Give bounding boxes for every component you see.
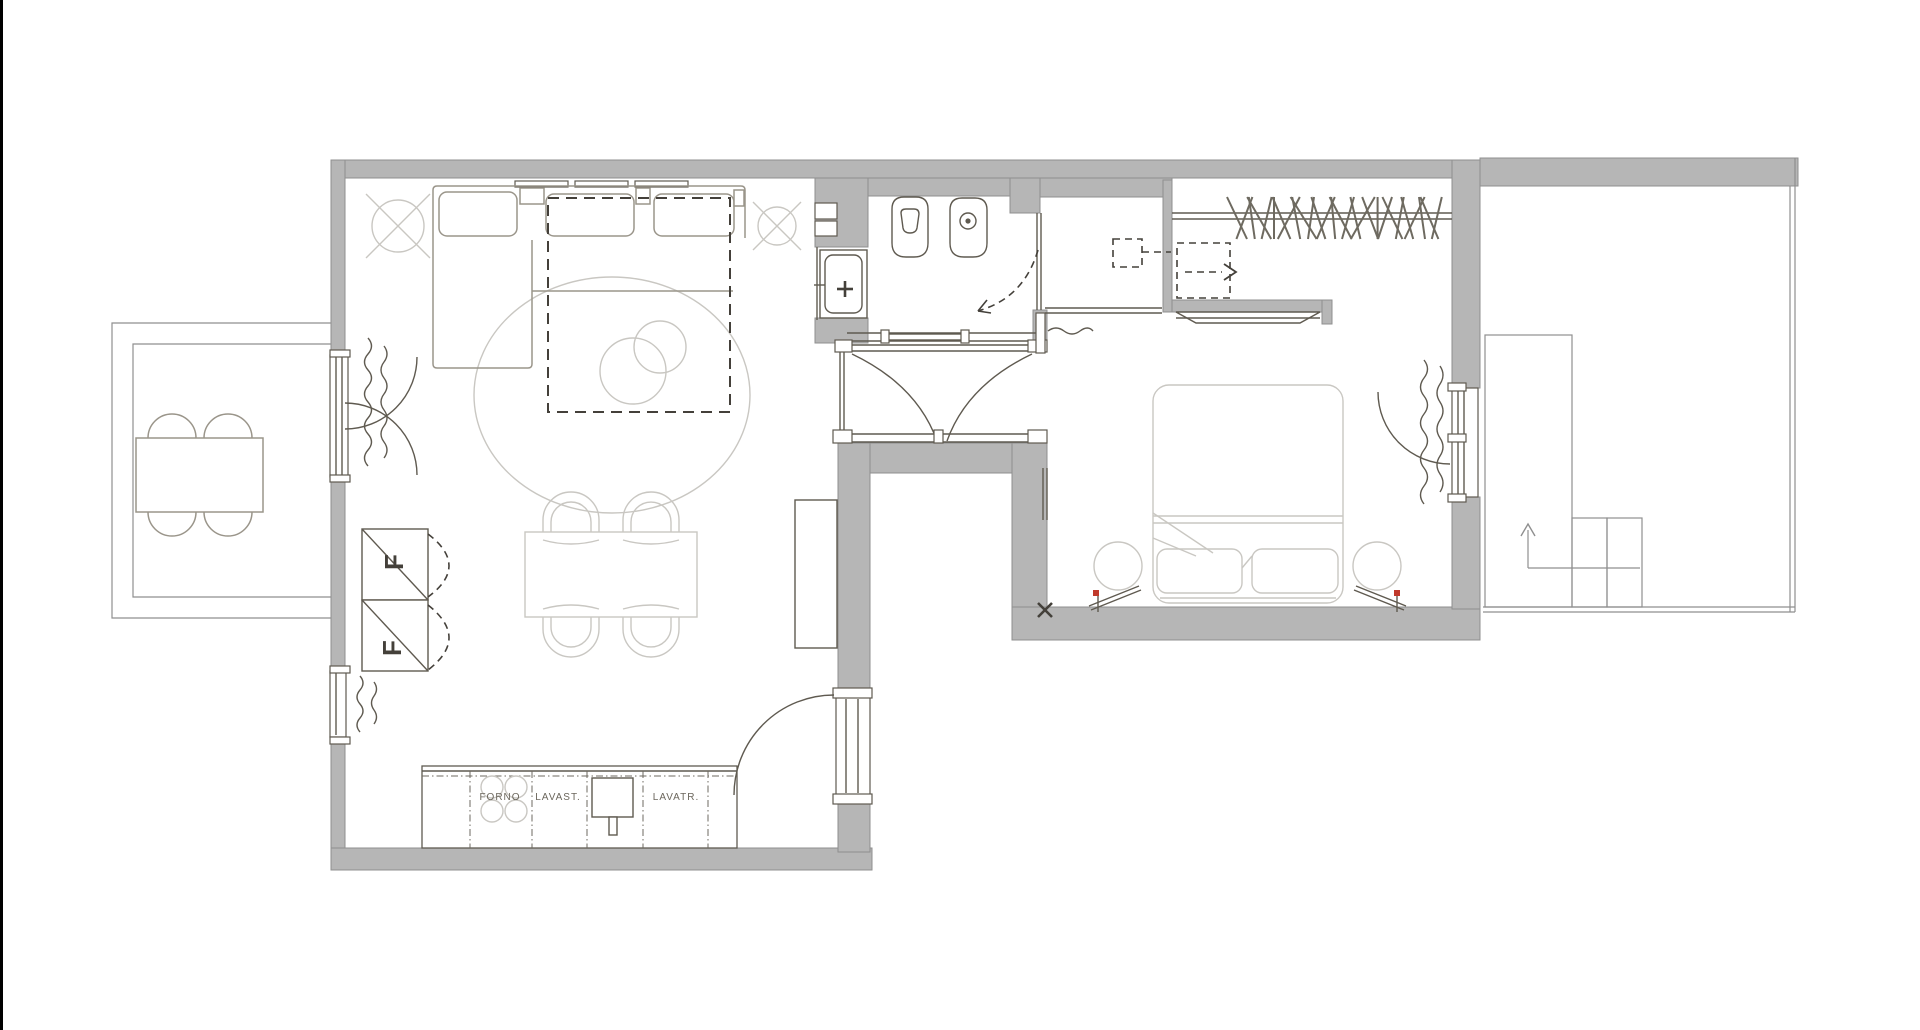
curtain-squiggle xyxy=(1437,366,1443,492)
door-jamb xyxy=(833,794,872,804)
curtain-squiggle xyxy=(365,338,372,466)
outdoor-chair xyxy=(148,414,196,438)
nightstand-round xyxy=(1353,542,1401,590)
double-bed xyxy=(1153,385,1343,603)
storage-column-label: F xyxy=(377,640,407,656)
storage-column-label: F xyxy=(379,554,409,570)
door-jamb xyxy=(835,340,852,352)
curtain-squiggle xyxy=(1421,360,1428,504)
door-jamb-column xyxy=(1036,313,1045,353)
curtain-squiggle xyxy=(357,676,363,732)
curtain-squiggle xyxy=(372,682,377,724)
step xyxy=(1572,518,1607,607)
ceiling-lamp-icon xyxy=(753,202,801,250)
pillow xyxy=(1252,549,1338,593)
wall-left-upper xyxy=(331,160,345,355)
label-oven: FORNO xyxy=(479,792,520,803)
sofa-cushion xyxy=(439,192,517,236)
balcony-door-window xyxy=(330,338,417,482)
sofa-armrest xyxy=(734,190,744,206)
dining-table xyxy=(525,532,697,617)
sofa-bed-open-outline xyxy=(548,198,730,412)
wall-left-middle xyxy=(331,477,345,671)
tall-cabinet xyxy=(795,500,837,648)
label-washing-machine: LAVATR. xyxy=(653,792,699,803)
balcony-right xyxy=(1483,158,1795,612)
living-room xyxy=(474,277,750,513)
shower xyxy=(814,250,867,318)
kitchen-counter: FORNO LAVAST. LAVATR. xyxy=(422,766,737,848)
walls xyxy=(331,158,1798,870)
round-rug xyxy=(474,277,750,513)
outdoor-chair xyxy=(204,512,252,536)
wall-bedroom-south xyxy=(1012,607,1480,640)
nightstand-round xyxy=(1094,542,1142,590)
entrance xyxy=(734,688,872,804)
laundry-niche xyxy=(1045,239,1171,313)
screen-edge-bar xyxy=(0,0,3,1030)
storage-column-f-lower: F xyxy=(362,600,449,671)
balcony-left xyxy=(112,323,331,618)
door-jamb xyxy=(833,688,872,698)
bidet xyxy=(950,198,987,257)
kitchen-window xyxy=(330,666,377,744)
opening-squiggle xyxy=(1048,328,1093,334)
appliance-dashed-outline xyxy=(1113,239,1142,267)
wall-bathroom-left-lower xyxy=(815,318,868,343)
side-table-large xyxy=(600,338,666,404)
double-door-swing xyxy=(852,354,937,441)
door-jamb xyxy=(1028,430,1047,443)
wall-below-entrance xyxy=(838,804,870,852)
living-room-furniture: F F xyxy=(362,181,837,671)
ceiling-lamp-icon xyxy=(366,194,430,258)
wall-bedroom-east-upper xyxy=(1452,160,1480,388)
door-swing-dashed xyxy=(428,605,449,670)
bathroom-door-swing-dashed xyxy=(978,250,1038,313)
storage-column-f-upper: F xyxy=(362,529,449,600)
dining-set xyxy=(525,492,697,657)
entrance-door-frame xyxy=(836,697,870,795)
wall-laundry-top xyxy=(1040,178,1172,197)
sofa xyxy=(433,186,745,368)
sofa-cushion xyxy=(654,194,734,236)
wall-closet-left xyxy=(1163,180,1172,312)
outdoor-table xyxy=(136,438,263,512)
direction-arrow xyxy=(1521,524,1640,568)
door-meeting-block xyxy=(934,430,943,443)
red-dot xyxy=(1093,590,1099,596)
step xyxy=(1607,518,1642,607)
label-dishwasher: LAVAST. xyxy=(535,792,581,803)
bedroom xyxy=(1038,360,1478,617)
floor-plan-canvas: F F xyxy=(0,0,1920,1030)
toilet xyxy=(892,197,928,257)
blanket-fold xyxy=(1153,513,1213,553)
wall-bathroom-corner xyxy=(1010,178,1040,213)
bathroom-sliding-door xyxy=(847,330,1040,343)
wall-top xyxy=(331,160,1480,178)
wall-niche xyxy=(815,203,837,219)
pillow xyxy=(1157,549,1242,593)
wall-niche xyxy=(815,221,837,236)
sofa-cushion xyxy=(546,194,634,236)
wall-living-right xyxy=(838,443,870,690)
wall-bedroom-east-lower xyxy=(1452,497,1480,609)
double-door-swing xyxy=(947,354,1032,441)
wall-balcony-right-top xyxy=(1480,158,1798,186)
sofa-armrest xyxy=(636,188,650,204)
appliance-dashed-closet xyxy=(1177,243,1236,298)
casement-swing xyxy=(1378,392,1450,464)
outdoor-chair xyxy=(204,414,252,438)
side-table-small xyxy=(634,321,686,373)
wall-closet-jamb xyxy=(1322,300,1332,324)
wall-closet-bottom xyxy=(1172,300,1332,312)
sofa-armrest xyxy=(520,188,544,204)
wall-bottom xyxy=(331,848,872,870)
curtain-squiggle xyxy=(381,346,387,458)
hallway-vestibule xyxy=(833,313,1093,520)
hanger-marks xyxy=(1227,197,1442,239)
red-dot xyxy=(1394,590,1400,596)
closet-sliding-door xyxy=(1176,312,1320,323)
outdoor-chair xyxy=(148,512,196,536)
door-jamb xyxy=(833,430,852,443)
casement-swing xyxy=(345,403,417,475)
floor-plan-drawing: F F xyxy=(0,0,1920,1030)
entrance-door-swing xyxy=(734,695,834,795)
door-swing-dashed xyxy=(428,534,449,597)
